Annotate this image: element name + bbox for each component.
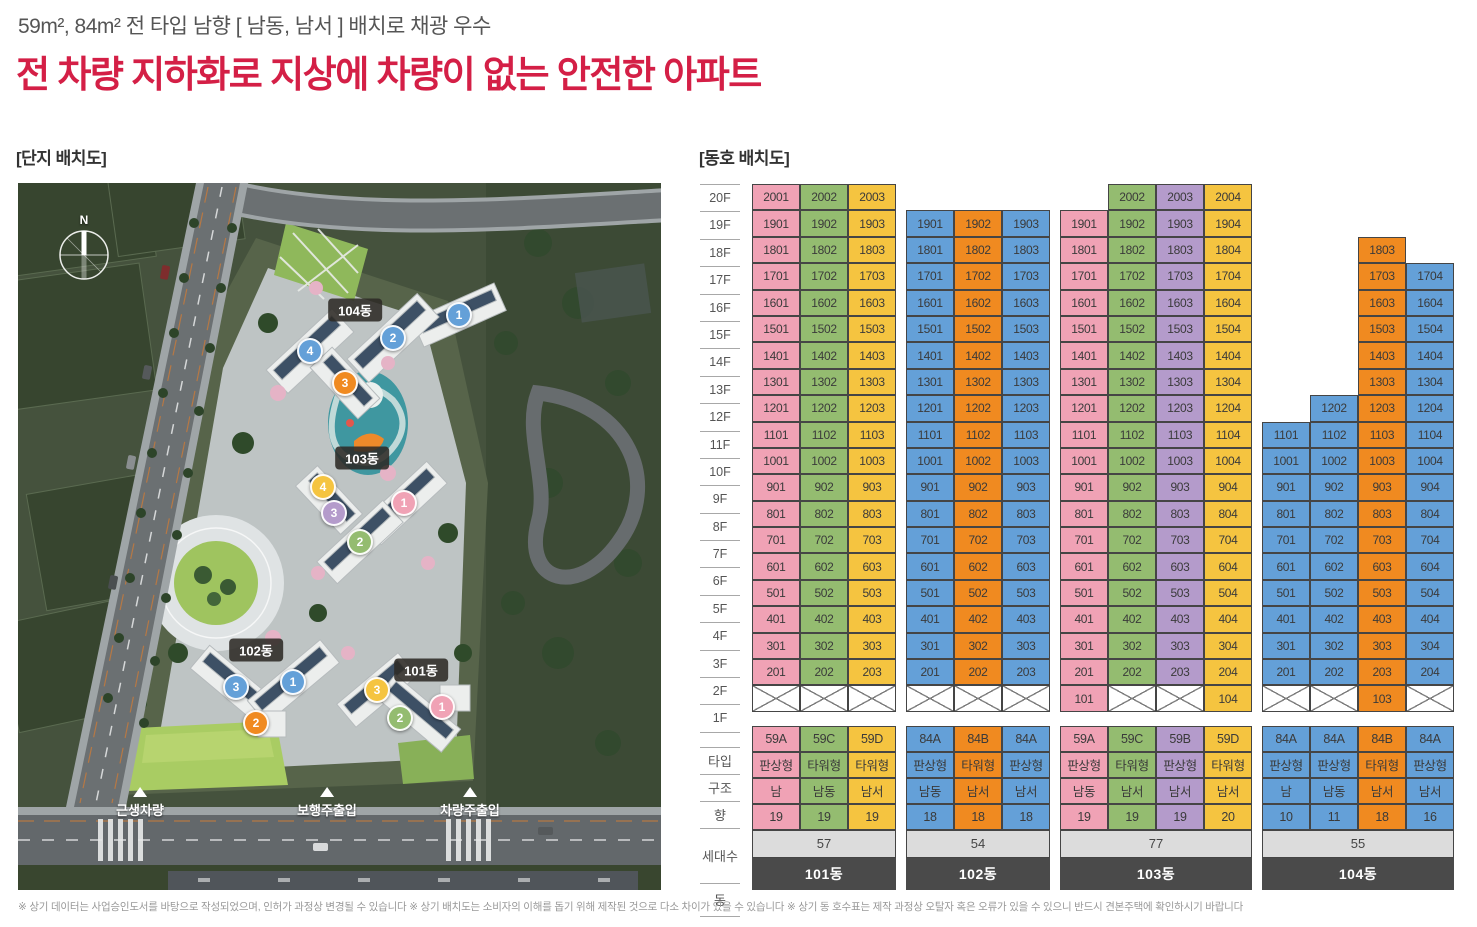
households-cell: 19 [1060, 804, 1108, 830]
unit-cell: 502 [1310, 580, 1358, 606]
floor-label: 17F [700, 267, 740, 294]
unit-cell: 1102 [800, 422, 848, 448]
unit-cell: 804 [1204, 501, 1252, 527]
unit-cell: 304 [1204, 633, 1252, 659]
unit-cell: 1901 [1060, 210, 1108, 236]
direction-cell: 남서 [1204, 778, 1252, 804]
unit-cell: 1301 [752, 369, 800, 395]
unit-cell: 601 [906, 553, 954, 579]
unit-cell: 604 [1204, 553, 1252, 579]
unit-cell: 702 [800, 527, 848, 553]
unit-cell: 1304 [1204, 369, 1252, 395]
households-cell: 19 [800, 804, 848, 830]
unit-cell: 1703 [1156, 263, 1204, 289]
buildings: 2001190118011701160115011401130112011101… [752, 184, 1454, 890]
unit-cell: 1902 [1108, 210, 1156, 236]
type-cell: 84B [1358, 726, 1406, 752]
unit-marker: 3 [332, 370, 358, 396]
unit-cell: 801 [752, 501, 800, 527]
unit-cell: 1003 [1002, 448, 1050, 474]
unit-cell: 1803 [848, 237, 896, 263]
unit-cell: 1101 [906, 422, 954, 448]
households-cell: 20 [1204, 804, 1252, 830]
structure-cell: 판상형 [906, 752, 954, 778]
floor-label: 11F [700, 432, 740, 459]
floor-label: 8F [700, 514, 740, 541]
direction-cell: 남서 [1002, 778, 1050, 804]
unit-cell: 901 [906, 474, 954, 500]
unit-cell: 1201 [752, 395, 800, 421]
building-101동: 2001190118011701160115011401130112011101… [752, 184, 896, 890]
building-103동: 1901180117011601150114011301120111011001… [1060, 184, 1252, 890]
unit-cell: 601 [1262, 553, 1310, 579]
site-plan-section-label: [단지 배치도] [16, 144, 106, 169]
unit-cell: 803 [1358, 501, 1406, 527]
direction-cell: 남동 [1060, 778, 1108, 804]
unit-cell: 502 [800, 580, 848, 606]
unit-cell: 1102 [1108, 422, 1156, 448]
unit-cell: 1202 [954, 395, 1002, 421]
unit-cell: 1602 [1108, 290, 1156, 316]
building-badge-103동: 103동 [335, 447, 389, 470]
unit-cell: 1004 [1406, 448, 1454, 474]
unit-cell: 1303 [1156, 369, 1204, 395]
page-title: 전 차량 지하화로 지상에 차량이 없는 안전한 아파트 [16, 44, 761, 98]
type-cell: 84B [954, 726, 1002, 752]
type-cell: 59A [1060, 726, 1108, 752]
type-cell: 84A [1310, 726, 1358, 752]
unit-cell: 603 [1156, 553, 1204, 579]
unit-cell: 1603 [1002, 290, 1050, 316]
floor-label: 12F [700, 404, 740, 431]
unit-cell: 203 [1002, 659, 1050, 685]
unit-cell: 202 [954, 659, 1002, 685]
unit-cell: 2003 [1156, 184, 1204, 210]
direction-cell: 남 [752, 778, 800, 804]
unit-marker: 3 [223, 674, 249, 700]
unit-cell: 1403 [848, 342, 896, 368]
unit-cell: 701 [1262, 527, 1310, 553]
unit-cell: 2003 [848, 184, 896, 210]
unit-marker: 4 [297, 338, 323, 364]
unit-cell: 1001 [1060, 448, 1108, 474]
unit-cell: 1102 [954, 422, 1002, 448]
unit-cell: 1701 [906, 263, 954, 289]
unit-cell: 801 [1262, 501, 1310, 527]
floor-label: 16F [700, 295, 740, 322]
unit-cell: 1602 [954, 290, 1002, 316]
direction-cell: 남동 [906, 778, 954, 804]
unit-cell: 902 [800, 474, 848, 500]
unit-cell: 1303 [1002, 369, 1050, 395]
floor-label: 1F [700, 705, 740, 732]
unit-cell: 1702 [1108, 263, 1156, 289]
households-cell: 19 [1108, 804, 1156, 830]
unit-cell: 801 [906, 501, 954, 527]
unit-cell: 1502 [1108, 316, 1156, 342]
direction-cell: 남서 [1358, 778, 1406, 804]
entrance-arrow-icon [463, 787, 477, 797]
households-cell: 18 [1358, 804, 1406, 830]
building-name: 101동 [752, 858, 896, 890]
type-cell: 84A [906, 726, 954, 752]
unit-cell: 402 [1108, 606, 1156, 632]
unit-cell: 201 [1262, 659, 1310, 685]
unit-cell: 901 [1060, 474, 1108, 500]
unit-cell: 503 [848, 580, 896, 606]
unit-cell: 604 [1406, 553, 1454, 579]
unit-cell: 301 [1060, 633, 1108, 659]
unit-cell: 1001 [906, 448, 954, 474]
unit-cell: 1001 [752, 448, 800, 474]
unit-cell: 1901 [752, 210, 800, 236]
row-label-direction: 향 [700, 802, 740, 829]
unit-cell: 1203 [848, 395, 896, 421]
unit-cell: 502 [1108, 580, 1156, 606]
unit-cell: 201 [752, 659, 800, 685]
type-cell: 84A [1406, 726, 1454, 752]
type-cell: 59B [1156, 726, 1204, 752]
unit-cell: 1203 [1358, 395, 1406, 421]
unit-cell: 1901 [906, 210, 954, 236]
unit-marker: 2 [243, 710, 269, 736]
unit-cell: 902 [1108, 474, 1156, 500]
unit-cell: 404 [1204, 606, 1252, 632]
households-cell: 18 [954, 804, 1002, 830]
structure-cell: 타워형 [1108, 752, 1156, 778]
unit-marker: 3 [364, 677, 390, 703]
floor-label: 6F [700, 568, 740, 595]
households-cell: 18 [906, 804, 954, 830]
unit-cell: 904 [1204, 474, 1252, 500]
direction-cell: 남서 [954, 778, 1002, 804]
unit-cell: 1602 [800, 290, 848, 316]
row-label-households: 세대수 [700, 829, 740, 884]
unit-cell: 802 [1310, 501, 1358, 527]
row-label-structure: 구조 [700, 775, 740, 802]
unit-cell: 501 [1262, 580, 1310, 606]
unit-cell: 1604 [1204, 290, 1252, 316]
unit-cell: 1304 [1406, 369, 1454, 395]
unit-cell: 704 [1204, 527, 1252, 553]
unit-cell: 1503 [1358, 316, 1406, 342]
unit-cell: 403 [848, 606, 896, 632]
direction-cell: 남서 [1156, 778, 1204, 804]
building-name: 103동 [1060, 858, 1252, 890]
unit-cell: 303 [1002, 633, 1050, 659]
unit-cell: 1802 [800, 237, 848, 263]
unit-cell: 501 [906, 580, 954, 606]
unit-cell: 1702 [800, 263, 848, 289]
unit-cell: 1103 [1358, 422, 1406, 448]
unit-cell: 404 [1406, 606, 1454, 632]
unit-cell: 703 [1002, 527, 1050, 553]
unit-marker: 2 [380, 325, 406, 351]
structure-cell: 판상형 [1310, 752, 1358, 778]
unit-cell: 701 [752, 527, 800, 553]
unit-cell: 1903 [1002, 210, 1050, 236]
unit-cell: 202 [800, 659, 848, 685]
floor-label: 4F [700, 623, 740, 650]
unit-cell: 1301 [906, 369, 954, 395]
floor-axis: 20F19F18F17F16F15F14F13F12F11F10F9F8F7F6… [700, 184, 740, 917]
unit-cell: 602 [800, 553, 848, 579]
structure-cell: 타워형 [1204, 752, 1252, 778]
unit-cell: 1402 [1108, 342, 1156, 368]
unit-cell: 1702 [954, 263, 1002, 289]
footnote: ※ 상기 데이터는 사업승인도서를 바탕으로 작성되었으며, 인허가 과정상 변… [18, 899, 1243, 914]
unit-cell: 1902 [954, 210, 1002, 236]
unit-cell: 802 [1108, 501, 1156, 527]
excluded-cell [800, 685, 848, 711]
unit-cell: 1601 [752, 290, 800, 316]
excluded-cell [1406, 685, 1454, 711]
unit-cell: 1703 [848, 263, 896, 289]
unit-cell: 1104 [1204, 422, 1252, 448]
unit-cell: 401 [906, 606, 954, 632]
unit-cell: 1503 [848, 316, 896, 342]
row-label-type: 타입 [700, 747, 740, 775]
unit-cell: 1203 [1002, 395, 1050, 421]
unit-cell: 803 [1002, 501, 1050, 527]
unit-cell: 903 [848, 474, 896, 500]
unit-cell: 1102 [1310, 422, 1358, 448]
unit-cell: 602 [1310, 553, 1358, 579]
type-cell: 59C [1108, 726, 1156, 752]
unit-marker: 1 [391, 490, 417, 516]
households-cell: 19 [752, 804, 800, 830]
direction-cell: 남동 [1310, 778, 1358, 804]
floor-label: 3F [700, 651, 740, 678]
compass-icon [60, 231, 108, 279]
unit-cell: 603 [1358, 553, 1406, 579]
unit-cell: 1201 [1060, 395, 1108, 421]
entrance-arrow-icon [320, 787, 334, 797]
unit-cell: 703 [1156, 527, 1204, 553]
unit-cell: 1204 [1204, 395, 1252, 421]
unit-cell: 501 [1060, 580, 1108, 606]
total-households: 77 [1060, 830, 1252, 858]
unit-cell: 1203 [1156, 395, 1204, 421]
unit-cell: 1903 [848, 210, 896, 236]
structure-cell: 판상형 [1060, 752, 1108, 778]
unit-cell: 1003 [1358, 448, 1406, 474]
unit-cell: 1802 [954, 237, 1002, 263]
unit-cell: 1904 [1204, 210, 1252, 236]
unit-cell: 302 [954, 633, 1002, 659]
unit-cell: 1303 [848, 369, 896, 395]
unit-cell: 1801 [752, 237, 800, 263]
building-name: 104동 [1262, 858, 1454, 890]
unit-cell: 1103 [848, 422, 896, 448]
unit-cell: 1402 [800, 342, 848, 368]
unit-cell: 1703 [1002, 263, 1050, 289]
unit-cell: 1402 [954, 342, 1002, 368]
floor-label: 20F [700, 184, 740, 212]
unit-cell: 1101 [752, 422, 800, 448]
unit-cell: 1502 [800, 316, 848, 342]
unit-cell: 1404 [1406, 342, 1454, 368]
floor-label: 13F [700, 377, 740, 404]
unit-cell: 803 [848, 501, 896, 527]
building-badge-102동: 102동 [229, 639, 283, 662]
unit-cell: 503 [1002, 580, 1050, 606]
building-name: 102동 [906, 858, 1050, 890]
unit-cell: 1303 [1358, 369, 1406, 395]
unit-cell: 1501 [1060, 316, 1108, 342]
building-104동: 1101100190180170160150140130120112021102… [1262, 184, 1454, 890]
unit-cell: 701 [1060, 527, 1108, 553]
entrance-label: 근생차량 [116, 787, 164, 819]
unit-cell: 1002 [1310, 448, 1358, 474]
direction-cell: 남서 [848, 778, 896, 804]
type-cell: 84A [1262, 726, 1310, 752]
unit-cell: 1501 [752, 316, 800, 342]
unit-cell: 303 [848, 633, 896, 659]
unit-cell: 302 [1108, 633, 1156, 659]
building-102동: 1901180117011601150114011301120111011001… [906, 184, 1050, 890]
unit-cell: 203 [1156, 659, 1204, 685]
excluded-cell [1310, 685, 1358, 711]
households-cell: 16 [1406, 804, 1454, 830]
unit-marker: 1 [446, 302, 472, 328]
unit-cell: 1503 [1156, 316, 1204, 342]
unit-cell: 1403 [1002, 342, 1050, 368]
unit-cell: 1403 [1358, 342, 1406, 368]
excluded-cell [1156, 685, 1204, 711]
unit-cell: 1204 [1406, 395, 1454, 421]
type-cell: 84A [1002, 726, 1050, 752]
unit-cell: 101 [1060, 685, 1108, 711]
unit-cell: 1704 [1406, 263, 1454, 289]
structure-cell: 타워형 [954, 752, 1002, 778]
unit-cell: 1403 [1156, 342, 1204, 368]
unit-cell: 903 [1358, 474, 1406, 500]
unit-cell: 1302 [954, 369, 1002, 395]
unit-chart: 20F19F18F17F16F15F14F13F12F11F10F9F8F7F6… [700, 184, 1454, 917]
unit-cell: 204 [1204, 659, 1252, 685]
unit-cell: 1902 [800, 210, 848, 236]
unit-cell: 401 [1060, 606, 1108, 632]
unit-cell: 1601 [906, 290, 954, 316]
unit-cell: 1604 [1406, 290, 1454, 316]
direction-cell: 남 [1262, 778, 1310, 804]
unit-cell: 104 [1204, 685, 1252, 711]
direction-cell: 남서 [1406, 778, 1454, 804]
direction-cell: 남서 [1108, 778, 1156, 804]
unit-cell: 1002 [1108, 448, 1156, 474]
excluded-cell [906, 685, 954, 711]
unit-plan-section-label: [동호 배치도] [699, 144, 789, 169]
unit-cell: 902 [1310, 474, 1358, 500]
total-households: 54 [906, 830, 1050, 858]
unit-cell: 302 [800, 633, 848, 659]
type-cell: 59D [848, 726, 896, 752]
unit-cell: 602 [954, 553, 1002, 579]
unit-cell: 1302 [1108, 369, 1156, 395]
unit-cell: 201 [1060, 659, 1108, 685]
unit-cell: 1103 [1002, 422, 1050, 448]
unit-cell: 204 [1406, 659, 1454, 685]
unit-cell: 903 [1002, 474, 1050, 500]
unit-cell: 601 [1060, 553, 1108, 579]
entrance-label: 보행주출입 [297, 787, 357, 819]
unit-cell: 303 [1358, 633, 1406, 659]
unit-cell: 1103 [1156, 422, 1204, 448]
unit-cell: 1504 [1406, 316, 1454, 342]
unit-cell: 1302 [800, 369, 848, 395]
unit-cell: 501 [752, 580, 800, 606]
unit-cell: 904 [1406, 474, 1454, 500]
unit-cell: 1004 [1204, 448, 1252, 474]
unit-cell: 504 [1204, 580, 1252, 606]
unit-cell: 1104 [1406, 422, 1454, 448]
structure-cell: 타워형 [1358, 752, 1406, 778]
structure-cell: 타워형 [800, 752, 848, 778]
unit-cell: 1002 [954, 448, 1002, 474]
unit-cell: 203 [1358, 659, 1406, 685]
unit-cell: 201 [906, 659, 954, 685]
unit-cell: 1504 [1204, 316, 1252, 342]
unit-cell: 703 [848, 527, 896, 553]
structure-cell: 판상형 [1406, 752, 1454, 778]
structure-cell: 타워형 [848, 752, 896, 778]
unit-marker: 4 [310, 474, 336, 500]
unit-cell: 1202 [800, 395, 848, 421]
unit-cell: 504 [1406, 580, 1454, 606]
unit-cell: 1502 [954, 316, 1002, 342]
total-households: 55 [1262, 830, 1454, 858]
unit-cell: 1202 [1310, 395, 1358, 421]
unit-cell: 302 [1310, 633, 1358, 659]
floor-label: 7F [700, 541, 740, 568]
unit-marker: 2 [387, 705, 413, 731]
unit-cell: 1003 [848, 448, 896, 474]
unit-marker: 1 [280, 669, 306, 695]
unit-cell: 802 [954, 501, 1002, 527]
unit-cell: 601 [752, 553, 800, 579]
structure-cell: 판상형 [752, 752, 800, 778]
unit-cell: 502 [954, 580, 1002, 606]
unit-cell: 1501 [906, 316, 954, 342]
unit-cell: 702 [954, 527, 1002, 553]
excluded-cell [1002, 685, 1050, 711]
unit-cell: 1803 [1002, 237, 1050, 263]
unit-cell: 1701 [752, 263, 800, 289]
unit-cell: 901 [1262, 474, 1310, 500]
unit-cell: 1603 [1156, 290, 1204, 316]
floor-label: 18F [700, 240, 740, 267]
unit-cell: 901 [752, 474, 800, 500]
unit-cell: 1404 [1204, 342, 1252, 368]
unit-cell: 702 [1310, 527, 1358, 553]
unit-cell: 1401 [1060, 342, 1108, 368]
unit-cell: 1201 [906, 395, 954, 421]
unit-cell: 1002 [800, 448, 848, 474]
structure-cell: 판상형 [1156, 752, 1204, 778]
floor-label: 5F [700, 596, 740, 623]
unit-cell: 1601 [1060, 290, 1108, 316]
unit-cell: 2002 [1108, 184, 1156, 210]
unit-cell: 402 [800, 606, 848, 632]
unit-cell: 702 [1108, 527, 1156, 553]
unit-cell: 402 [1310, 606, 1358, 632]
unit-cell: 1803 [1156, 237, 1204, 263]
unit-cell: 1603 [1358, 290, 1406, 316]
unit-cell: 301 [1262, 633, 1310, 659]
floor-label: 10F [700, 459, 740, 486]
compass-north-label: N [80, 213, 89, 227]
